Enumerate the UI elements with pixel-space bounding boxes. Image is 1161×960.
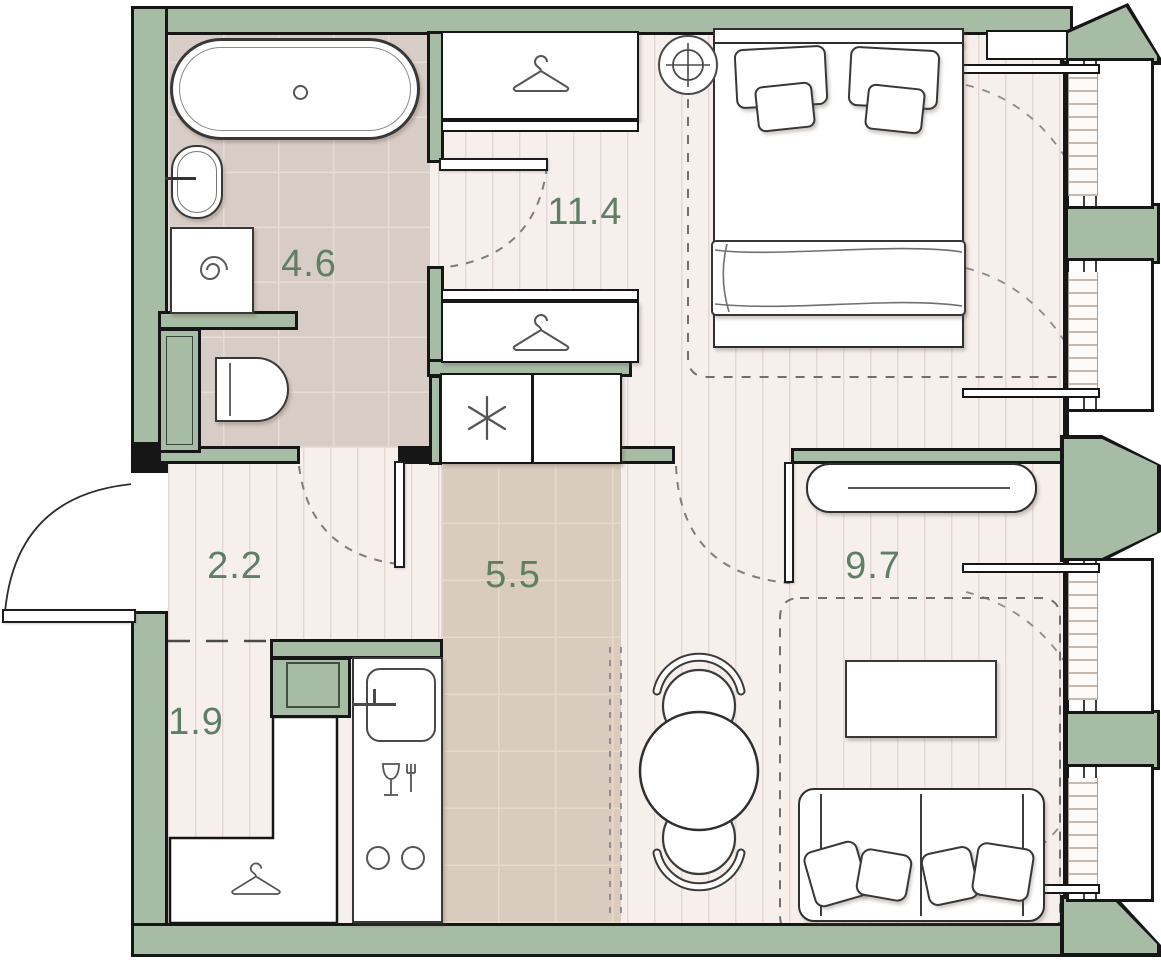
pillow-small-right [864, 83, 926, 135]
facade-pier-2 [1065, 710, 1160, 770]
bathroom-door-arc [299, 466, 398, 564]
living-door-arc [676, 466, 790, 583]
sofa-seat-divider [920, 794, 922, 916]
ensuite-door-leaf [439, 158, 548, 171]
radiator-1 [1068, 72, 1098, 196]
living-door-leaf [784, 462, 794, 583]
floor-plan: 4.6 11.4 2.2 5.5 1.9 9.7 [0, 0, 1161, 960]
wall-kitchen-bar [270, 639, 443, 659]
burner-circle-icon [366, 846, 390, 870]
kitchen-counter [352, 657, 443, 923]
bathroom-door-leaf [394, 461, 405, 568]
duct-shaft-inner [166, 336, 193, 445]
sofa-cushion [854, 847, 914, 903]
radiator-3 [1068, 572, 1098, 700]
living-area-label: 9.7 [818, 545, 928, 588]
burner-circle-icon [401, 846, 425, 870]
wardrobe-1 [441, 31, 639, 120]
coat-hanger-icon [509, 314, 573, 354]
washbasin-tap-icon [165, 177, 196, 180]
blanket [711, 240, 966, 316]
bathtub [170, 38, 420, 140]
blanket-fold-lines [713, 242, 964, 314]
curtain-rail-2 [962, 388, 1100, 398]
toilet-seat-line [229, 363, 231, 416]
hallway-area-label: 2.2 [180, 545, 290, 588]
wardrobe-1-shelf [441, 120, 639, 132]
wall-step [618, 446, 675, 464]
radiator-4 [1068, 778, 1098, 888]
coat-hanger-icon [228, 862, 284, 898]
facade-pier-1 [1065, 203, 1160, 264]
sofa-cushion [970, 841, 1036, 903]
wall-living-partition [791, 448, 1065, 464]
sofa-cushion [919, 844, 981, 908]
washbasin [171, 145, 223, 219]
coffee-table [845, 660, 997, 738]
round-dining-table [640, 712, 758, 830]
pillow-small-left [754, 81, 816, 133]
washing-machine [170, 227, 254, 314]
round-lamp-cross-icon [656, 33, 720, 97]
kitchen-tap-stub [373, 689, 376, 705]
wall-vent-block [270, 657, 351, 718]
duct-shaft [158, 328, 201, 453]
coat-hanger-icon [509, 55, 573, 95]
drain-circle-icon [293, 85, 308, 100]
washbasin-inner [177, 151, 217, 213]
closet-area-label: 1.9 [141, 701, 251, 744]
bedroom-area-label: 11.4 [530, 191, 640, 234]
entrance-door-leaf [2, 609, 136, 623]
wall-left-lower [131, 611, 168, 957]
vent-square [286, 662, 340, 708]
wall-bottom [131, 923, 1073, 957]
spiral-icon [188, 245, 238, 295]
console-sideboard [806, 463, 1037, 513]
curtain-rail-1 [962, 64, 1100, 74]
nightstand [986, 30, 1068, 60]
wine-glass-fork-icon [380, 762, 420, 810]
bathroom-area-label: 4.6 [254, 243, 364, 286]
kitchen-area-label: 5.5 [458, 554, 568, 597]
entrance-door-arc [5, 484, 133, 612]
asterisk-snowflake-icon [463, 394, 511, 442]
wardrobe-2-shelf [441, 289, 639, 301]
refrigerator-cabinet [440, 373, 622, 464]
toilet [215, 357, 289, 422]
wardrobe-2 [441, 301, 639, 363]
cabinet-divider [531, 375, 534, 462]
console-line [848, 487, 1010, 489]
entrance-opening [131, 473, 168, 611]
dining-table-group [630, 636, 770, 906]
curtain-rail-3 [962, 563, 1100, 573]
radiator-2 [1068, 272, 1098, 398]
